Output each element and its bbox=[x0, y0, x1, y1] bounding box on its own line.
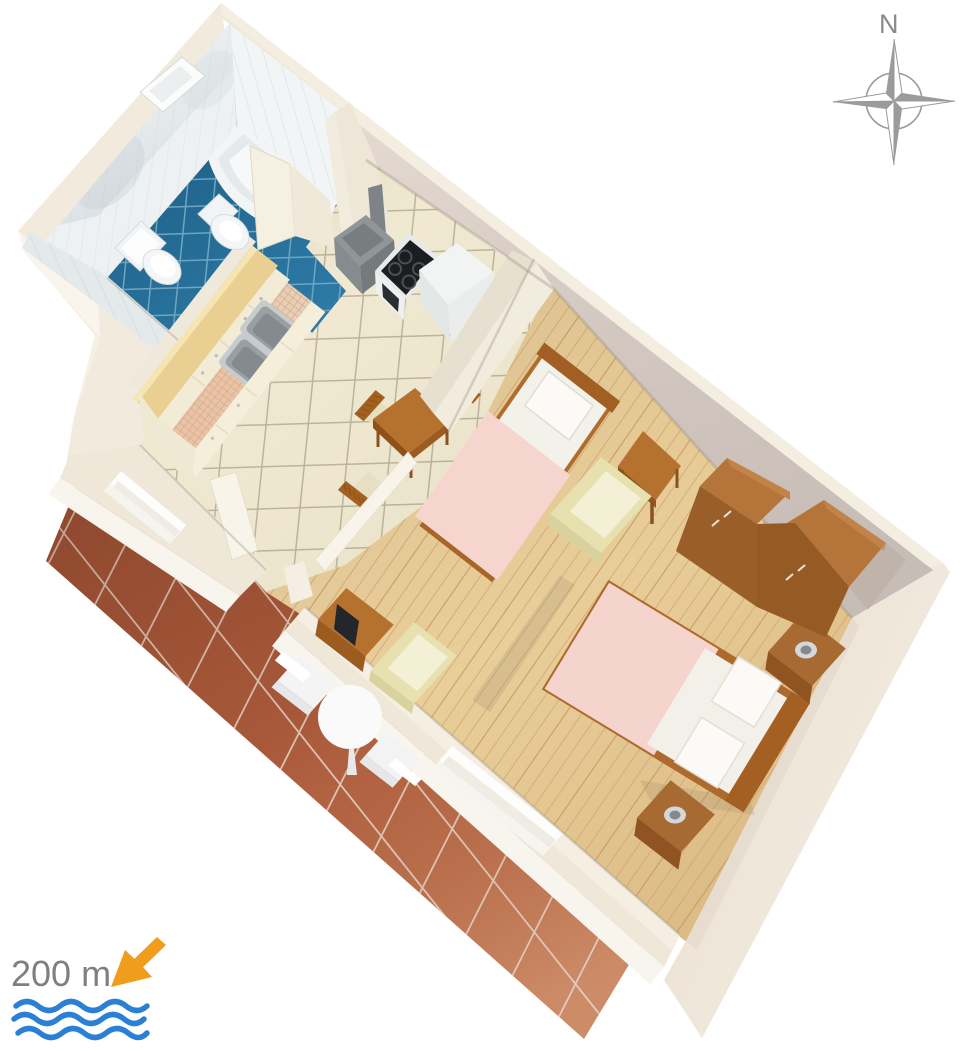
svg-text:200 m: 200 m bbox=[11, 953, 111, 994]
svg-text:N: N bbox=[879, 9, 899, 39]
